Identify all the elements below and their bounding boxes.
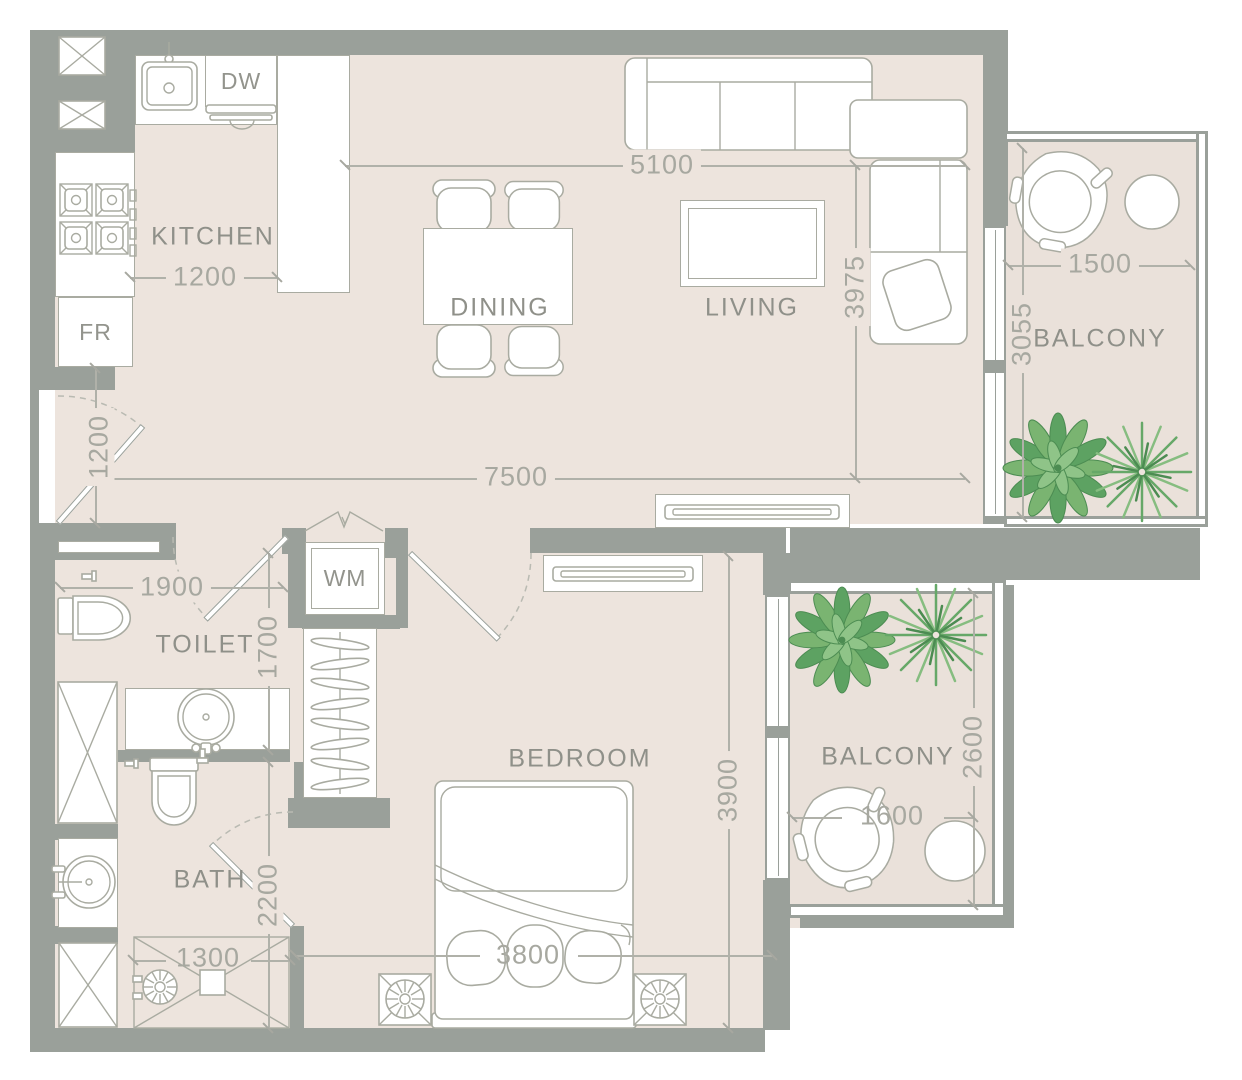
- floor-plan: DW FR: [0, 0, 1242, 1080]
- balcony-top-label: BALCONY: [1033, 325, 1166, 354]
- dim-toilet-width: 1900: [133, 572, 211, 603]
- dim-bedroom-width: 3800: [496, 940, 560, 971]
- bedroom-label: BEDROOM: [508, 745, 651, 774]
- dim-balcony-bottom-width: 1600: [860, 801, 924, 832]
- dimension-line: [251, 960, 290, 962]
- kitchen-label: KITCHEN: [151, 223, 275, 252]
- toilet-label: TOILET: [155, 631, 254, 660]
- dim-overall-width: 7500: [477, 462, 555, 493]
- dim-living-width: 5100: [623, 150, 701, 181]
- dim-balcony-top-width: 1500: [1061, 249, 1139, 280]
- dimension-line: [578, 955, 772, 957]
- dim-bedroom-depth: 3900: [713, 751, 744, 829]
- dimension-line: [295, 955, 480, 957]
- dim-entry-opening: 1200: [84, 408, 115, 486]
- dim-shower-width: 1300: [176, 943, 240, 974]
- dim-living-depth: 3975: [840, 248, 871, 326]
- balcony-bottom-label: BALCONY: [821, 743, 954, 772]
- living-label: LIVING: [705, 294, 799, 323]
- dim-kitchen-counter: 1200: [166, 262, 244, 293]
- door-swing-arcs: [0, 0, 1242, 1080]
- dim-bath-depth: 2200: [253, 856, 284, 934]
- dimension-line: [133, 960, 166, 962]
- bath-label: BATH: [174, 866, 247, 895]
- dimension-line: [792, 817, 842, 819]
- dimension-line: [944, 817, 973, 819]
- dim-toilet-depth: 1700: [253, 608, 284, 686]
- dim-balcony-bottom-depth: 2600: [958, 708, 989, 786]
- dining-label: DINING: [450, 294, 550, 323]
